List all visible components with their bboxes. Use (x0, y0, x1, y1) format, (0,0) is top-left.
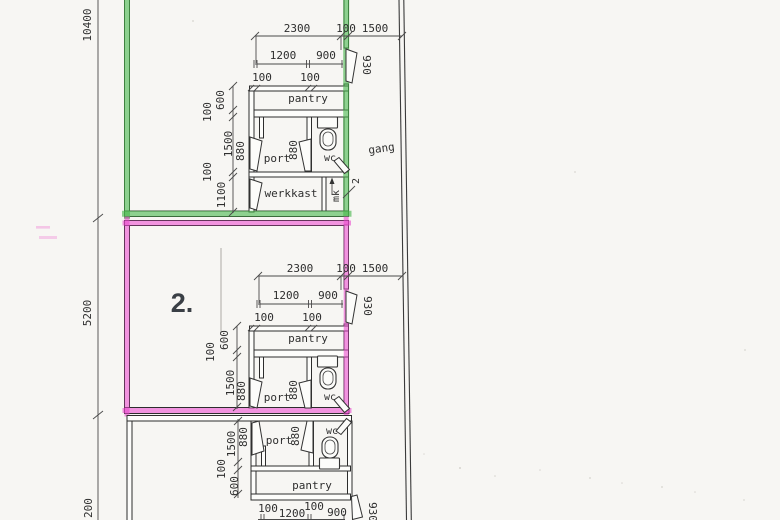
dim-880-left: 880 (237, 427, 250, 447)
dim-1200: 1200 (279, 507, 306, 520)
wall (322, 177, 326, 211)
dim-930: 930 (366, 502, 379, 520)
dim-unit3-partial: 200 (82, 498, 95, 518)
dim-880-left: 880 (234, 141, 247, 161)
door-leaf (301, 421, 313, 453)
dim-1500: 1500 (225, 431, 238, 458)
wall (251, 494, 351, 500)
dim-unit2-height: 5200 (81, 300, 94, 327)
dim-100: 100 (252, 71, 272, 84)
room-label-wc: wc (326, 426, 338, 437)
door-leaf (252, 421, 264, 455)
scanned-floorplan-page: 10400 5200 200 gang 2300 100 1500 (0, 0, 780, 520)
room-label-pantry: pantry (292, 479, 332, 492)
entry-door-leaf (352, 495, 363, 520)
unit-number: 2. (171, 288, 194, 318)
room-label-wc: wc (324, 153, 336, 164)
dim-100: 100 (254, 311, 274, 324)
pink-smudge (36, 226, 50, 229)
arrow-up-icon (330, 178, 335, 185)
room-label-werkkast: werkkast (265, 187, 318, 200)
wall (249, 172, 349, 177)
room-label-mk: mk (331, 190, 342, 202)
room-label-pantry: pantry (288, 92, 328, 105)
pink-smudge (39, 236, 57, 239)
dim-100: 100 (304, 500, 324, 513)
dim-900: 900 (318, 289, 338, 302)
wall (127, 421, 132, 520)
wall (250, 110, 349, 117)
dim-600: 600 (214, 90, 227, 110)
dim-100: 100 (201, 162, 214, 182)
dim-2300: 2300 (287, 262, 314, 275)
dim-100: 100 (201, 102, 214, 122)
dim-880-left: 880 (235, 381, 248, 401)
unit-2: 2. 2300 100 1500 1200 900 100 100 600 10… (125, 219, 407, 414)
dim-1200: 1200 (270, 49, 297, 62)
dim-1500: 1500 (362, 22, 389, 35)
dim-100: 100 (300, 71, 320, 84)
floorplan-drawing: 10400 5200 200 gang 2300 100 1500 (0, 0, 780, 520)
wall (250, 326, 349, 331)
toilet-icon (320, 437, 340, 469)
dim-1500: 1500 (362, 262, 389, 275)
door-leaf (250, 378, 262, 408)
dim-1200: 1200 (273, 289, 300, 302)
wall (348, 421, 353, 497)
room-label-pantry: pantry (288, 332, 328, 345)
dim-880-right: 880 (287, 380, 300, 400)
unit-1: 2300 100 1500 1200 900 100 100 600 100 1… (125, 0, 407, 217)
dim-880-right: 880 (289, 426, 302, 446)
corridor-label: gang (367, 140, 395, 157)
room-label-wc: wc (324, 392, 336, 403)
dim-930: 930 (360, 55, 373, 75)
toilet-icon (318, 117, 338, 150)
dim-100: 100 (204, 342, 217, 362)
dim-100: 100 (336, 22, 356, 35)
dim-600: 600 (228, 476, 241, 496)
dim-900: 900 (316, 49, 336, 62)
unit-3: 930 wc port pantry 880 880 1500 100 600 … (127, 416, 379, 520)
dim-100: 100 (302, 311, 322, 324)
left-dimension: 10400 5200 200 (81, 0, 103, 520)
entry-door-leaf (346, 49, 357, 83)
dim-600: 600 (218, 330, 231, 350)
dim-total-height: 10400 (81, 8, 94, 41)
dim-2300: 2300 (284, 22, 311, 35)
door-leaf (299, 380, 311, 408)
entry-door-leaf (346, 291, 357, 324)
dim-100: 100 (258, 502, 278, 515)
dim-930: 930 (361, 296, 374, 316)
corridor: gang (367, 0, 411, 520)
dim-100: 100 (215, 459, 228, 479)
dim-1100: 1100 (215, 182, 228, 209)
wall (250, 86, 349, 91)
toilet-icon (318, 356, 338, 389)
wall (260, 117, 264, 138)
werkkast-door-leaf (250, 179, 262, 210)
dim-900: 900 (327, 506, 347, 519)
wall (260, 357, 264, 378)
dim-880-right: 880 (287, 140, 300, 160)
mk-count: 2 (351, 178, 362, 184)
door-leaf (250, 137, 262, 171)
door-leaf (299, 139, 311, 171)
scan-artifacts (36, 20, 746, 501)
dim-100: 100 (336, 262, 356, 275)
